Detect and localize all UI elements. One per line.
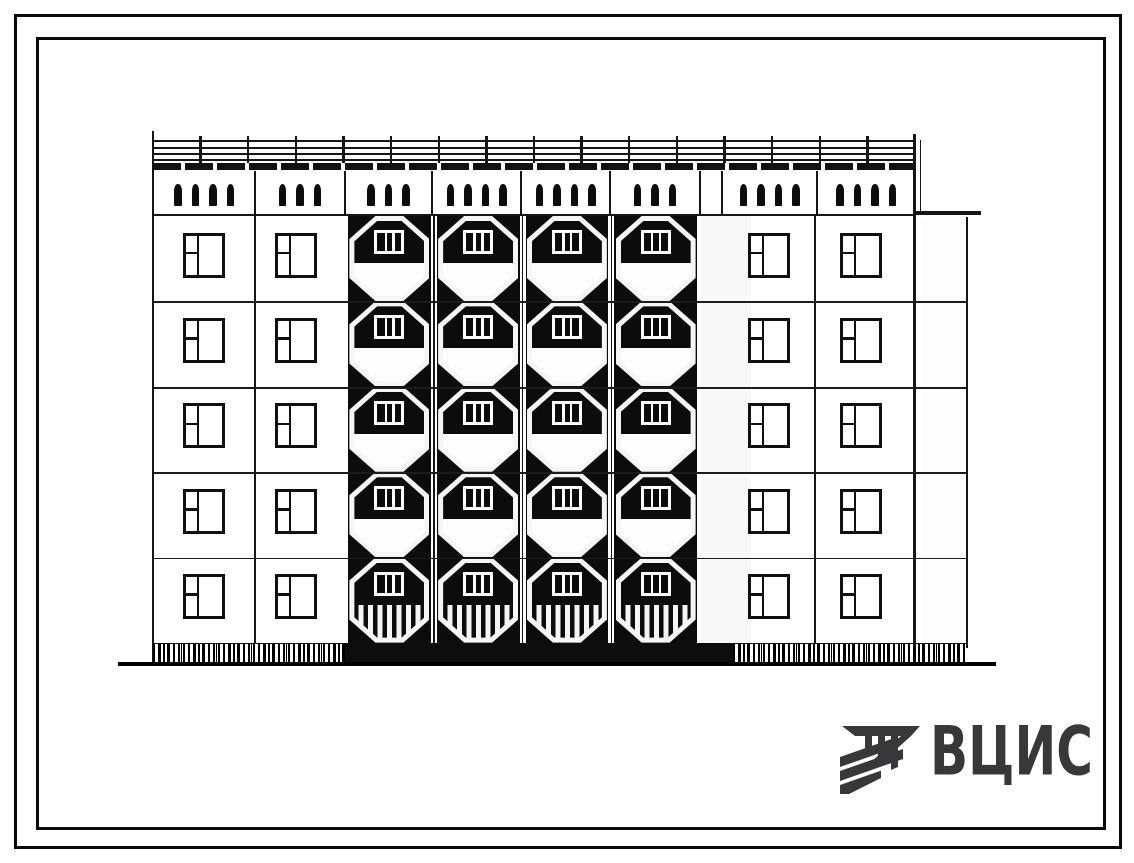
balcony-window-mullion (562, 318, 565, 336)
balcony-window-mullion (473, 233, 476, 251)
floor-line (153, 387, 966, 389)
balcony-window (641, 486, 671, 510)
balcony-balustrade-slats (532, 605, 602, 638)
attic-vent-slot (447, 184, 455, 206)
balcony-octagon-rim (349, 472, 429, 557)
balcony-octagon-interior (621, 477, 691, 552)
balcony-octagon-rim (527, 301, 607, 386)
balcony-window-mullion (392, 489, 395, 507)
balcony-window-pane (644, 318, 668, 336)
balcony-cell (345, 472, 434, 557)
balcony-cell (523, 387, 612, 472)
balcony-window-mullion (562, 233, 565, 251)
vent-band-joint (816, 171, 818, 215)
balcony-window (552, 315, 582, 339)
balcony-octagon-rim (616, 216, 696, 301)
facade-window (748, 403, 790, 448)
window-vent-divider (186, 593, 197, 596)
balcony-window-pane (377, 575, 401, 593)
balcony-window-mullion (392, 575, 395, 593)
facade-window (748, 489, 790, 534)
facade-window (183, 318, 225, 363)
facade-window (840, 318, 882, 363)
attic-vent-slot (192, 184, 200, 206)
balcony-window-pane (466, 404, 490, 422)
attic-vent-slot (227, 184, 235, 206)
balcony-window-pane (644, 233, 668, 251)
attic-vent-slot (669, 184, 677, 206)
attic-vent-slot (889, 184, 897, 206)
balcony-octagon-rim (527, 472, 607, 557)
balcony-window-pane (555, 489, 579, 507)
facade-window (748, 233, 790, 278)
window-casement-divider (197, 492, 200, 531)
balcony-balustrade-slats (354, 605, 424, 638)
balcony-window-pane (466, 233, 490, 251)
parapet-tick (771, 136, 773, 163)
balcony-octagon-rim (527, 387, 607, 472)
vent-band-joint (254, 171, 256, 215)
balcony-window-mullion (473, 489, 476, 507)
balcony-window-mullion (481, 233, 484, 251)
balcony-cell (611, 472, 700, 557)
window-casement-divider (197, 577, 200, 616)
window-casement-divider (197, 406, 200, 445)
balcony-window-mullion (651, 404, 654, 422)
balcony-octagon-interior (443, 392, 513, 467)
window-vent-divider (278, 252, 289, 255)
floor-line (153, 472, 966, 474)
balcony-window-mullion (659, 233, 662, 251)
attic-vent-slot (571, 184, 579, 206)
attic-vent-slot (296, 184, 304, 206)
balcony-window-mullion (570, 404, 573, 422)
balcony-balustrade-slats (443, 605, 513, 638)
balcony-octagon-interior (621, 392, 691, 467)
balcony-window (463, 401, 493, 425)
balcony-window-pane (377, 318, 401, 336)
facade-window (748, 318, 790, 363)
balcony-octagon-interior (443, 563, 513, 638)
facade-right-inner-edge (920, 140, 922, 215)
balcony-window-mullion (659, 318, 662, 336)
parapet-tick (723, 136, 725, 163)
balcony-window-mullion (473, 575, 476, 593)
balcony-octagon-rim (527, 558, 607, 643)
parapet-band (153, 163, 915, 170)
window-vent-divider (751, 508, 762, 511)
balcony-window (374, 486, 404, 510)
balcony-octagon-interior (354, 306, 424, 381)
parapet-tick (342, 136, 344, 163)
balcony-window (463, 315, 493, 339)
balcony-octagon-interior (621, 306, 691, 381)
balcony-balustrade-slats (621, 605, 691, 638)
window-vent-divider (843, 423, 854, 426)
vcis-logo: ВЦИС (836, 714, 1086, 804)
parapet-tick (247, 136, 249, 163)
parapet-tick (295, 136, 297, 163)
window-casement-divider (854, 321, 857, 360)
balcony-window-mullion (659, 575, 662, 593)
attic-vent-slot (464, 184, 472, 206)
balcony-window-mullion (570, 575, 573, 593)
window-casement-divider (854, 577, 857, 616)
window-vent-divider (278, 593, 289, 596)
balcony-octagon-interior (621, 221, 691, 296)
window-casement-divider (289, 492, 292, 531)
balcony-cell (345, 216, 434, 301)
facade-window (840, 574, 882, 619)
attic-vent-slot (553, 184, 561, 206)
balcony-window (463, 486, 493, 510)
window-vent-divider (751, 423, 762, 426)
window-vent-divider (186, 252, 197, 255)
balcony-octagon-interior (621, 563, 691, 638)
balcony-octagon-rim (349, 301, 429, 386)
balcony-window-pane (466, 489, 490, 507)
balcony-window (552, 486, 582, 510)
attic-vent-slot (836, 184, 844, 206)
window-vent-divider (751, 337, 762, 340)
window-casement-divider (762, 236, 765, 275)
balcony-window-pane (377, 233, 401, 251)
balcony-window-pane (555, 575, 579, 593)
window-casement-divider (289, 577, 292, 616)
balcony-cell (611, 387, 700, 472)
vent-band-joint (431, 171, 433, 215)
balcony-octagon-rim (616, 472, 696, 557)
facade-window (183, 233, 225, 278)
balcony-octagon-rim (438, 558, 518, 643)
balcony-octagon-interior (354, 563, 424, 638)
balcony-octagon-interior (532, 477, 602, 552)
facade-window (275, 403, 317, 448)
facade-window (183, 403, 225, 448)
attic-vent-slot (757, 184, 765, 206)
balcony-octagon-rim (616, 301, 696, 386)
vent-band-joint (721, 171, 723, 215)
balcony-window-pane (644, 404, 668, 422)
attic-vent-slot (651, 184, 659, 206)
balcony-window-mullion (570, 233, 573, 251)
parapet-tick (533, 136, 535, 163)
balcony-window (374, 315, 404, 339)
attic-vent-slot (385, 184, 393, 206)
facade-window (183, 574, 225, 619)
balcony-octagon-interior (443, 221, 513, 296)
window-vent-divider (751, 593, 762, 596)
parapet-tick (438, 136, 440, 163)
balcony-window-mullion (659, 489, 662, 507)
window-casement-divider (762, 577, 765, 616)
right-section-joint (814, 215, 816, 643)
balcony-window (641, 230, 671, 254)
balcony-window-mullion (473, 318, 476, 336)
balcony-window (552, 230, 582, 254)
balcony-octagon-rim (527, 216, 607, 301)
vent-band-joint (520, 171, 522, 215)
balcony-window (641, 401, 671, 425)
balcony-octagon-interior (354, 477, 424, 552)
vent-band-joint (344, 171, 346, 215)
plinth-solid (345, 643, 733, 662)
facade-window (275, 489, 317, 534)
parapet-tick (628, 136, 630, 163)
balcony-cell (434, 216, 523, 301)
window-casement-divider (289, 321, 292, 360)
balcony-window-pane (644, 489, 668, 507)
facade-window (840, 489, 882, 534)
facade-window (183, 489, 225, 534)
balcony-octagon-interior (532, 563, 602, 638)
side-wall-stipple (921, 218, 965, 647)
window-vent-divider (843, 508, 854, 511)
attic-vent-slot (854, 184, 862, 206)
balcony-window-pane (466, 318, 490, 336)
balcony-window-mullion (659, 404, 662, 422)
attic-vent-slot (174, 184, 182, 206)
balcony-cell (611, 301, 700, 386)
window-casement-divider (197, 236, 200, 275)
balcony-octagon-interior (354, 221, 424, 296)
balcony-cell (345, 558, 434, 643)
balcony-cell (345, 301, 434, 386)
balcony-window-pane (377, 489, 401, 507)
balcony-cell (523, 301, 612, 386)
balcony-octagon-interior (532, 221, 602, 296)
balcony-window (641, 315, 671, 339)
floor-line (153, 558, 966, 560)
attic-vent-slot (314, 184, 322, 206)
attic-vent-slot (209, 184, 217, 206)
attic-vent-slot (871, 184, 879, 206)
drawing-sheet: ВЦИС (0, 0, 1134, 863)
balcony-octagon-interior (443, 477, 513, 552)
balcony-octagon-rim (616, 387, 696, 472)
balcony-window-mullion (651, 489, 654, 507)
balcony-octagon-rim (438, 387, 518, 472)
balcony-octagon-interior (354, 392, 424, 467)
balcony-window-mullion (385, 575, 388, 593)
ground-line (118, 662, 996, 667)
facade-left-edge (152, 131, 154, 662)
balcony-window-mullion (385, 489, 388, 507)
attic-vent-slot (740, 184, 748, 206)
parapet-tick (390, 136, 392, 163)
balcony-cell (434, 301, 523, 386)
balcony-window-mullion (562, 489, 565, 507)
balcony-window-mullion (570, 318, 573, 336)
window-casement-divider (762, 406, 765, 445)
balcony-window-pane (555, 233, 579, 251)
balcony-window-mullion (481, 575, 484, 593)
balcony-octagon-rim (349, 216, 429, 301)
parapet-tick (199, 136, 201, 163)
parapet-tick (580, 136, 582, 163)
window-casement-divider (854, 236, 857, 275)
facade-window (748, 574, 790, 619)
balcony-window-mullion (473, 404, 476, 422)
balcony-octagon-rim (616, 558, 696, 643)
plinth-textured-left (153, 643, 345, 663)
window-casement-divider (197, 321, 200, 360)
balcony-cell (434, 472, 523, 557)
window-casement-divider (289, 406, 292, 445)
window-vent-divider (843, 337, 854, 340)
window-vent-divider (278, 337, 289, 340)
vcis-logo-icon (836, 724, 926, 794)
balcony-window-mullion (392, 404, 395, 422)
balcony-window-mullion (481, 404, 484, 422)
attic-vent-slot (634, 184, 642, 206)
balcony-window-pane (466, 575, 490, 593)
balcony-window-pane (555, 404, 579, 422)
attic-vent-slot (482, 184, 490, 206)
attic-vent-slot (279, 184, 287, 206)
balcony-window-mullion (651, 575, 654, 593)
side-wall-cornice (913, 211, 981, 215)
balcony-window-mullion (562, 575, 565, 593)
balcony-octagon-interior (443, 306, 513, 381)
attic-vent-slot (588, 184, 596, 206)
balcony-octagon-rim (438, 301, 518, 386)
facade-window (275, 574, 317, 619)
window-vent-divider (751, 252, 762, 255)
balcony-window (374, 401, 404, 425)
window-vent-divider (843, 593, 854, 596)
window-casement-divider (289, 236, 292, 275)
balcony-octagon-interior (532, 392, 602, 467)
balcony-window-mullion (651, 318, 654, 336)
window-vent-divider (278, 423, 289, 426)
facade-window (275, 318, 317, 363)
balcony-octagon-rim (349, 558, 429, 643)
attic-vent-slot (792, 184, 800, 206)
balcony-window-pane (555, 318, 579, 336)
parapet-tick (866, 136, 868, 163)
balcony-window-mullion (651, 233, 654, 251)
left-section-joint (254, 215, 256, 643)
balcony-window (374, 572, 404, 596)
side-wall-edge (966, 217, 969, 648)
window-casement-divider (854, 406, 857, 445)
balcony-window-mullion (392, 233, 395, 251)
floor-line (153, 301, 966, 303)
facade-window (840, 403, 882, 448)
window-vent-divider (186, 508, 197, 511)
shadow-strip (701, 216, 751, 643)
balcony-window (641, 572, 671, 596)
window-casement-divider (854, 492, 857, 531)
parapet-tick (676, 136, 678, 163)
balcony-window-mullion (562, 404, 565, 422)
balcony-window (463, 572, 493, 596)
balcony-cell (523, 472, 612, 557)
balcony-octagon-rim (438, 472, 518, 557)
vent-band-joint (699, 171, 701, 215)
attic-vent-slot (402, 184, 410, 206)
balcony-window (552, 572, 582, 596)
facade-window (275, 233, 317, 278)
parapet-tick (485, 136, 487, 163)
balcony-window-pane (377, 404, 401, 422)
plinth-textured-right (733, 643, 966, 663)
balcony-window (552, 401, 582, 425)
window-vent-divider (278, 508, 289, 511)
window-vent-divider (186, 423, 197, 426)
facade-window (840, 233, 882, 278)
balcony-cell (523, 216, 612, 301)
balcony-cell (434, 387, 523, 472)
balcony-window-mullion (570, 489, 573, 507)
window-vent-divider (186, 337, 197, 340)
balcony-octagon-rim (349, 387, 429, 472)
window-casement-divider (762, 492, 765, 531)
balcony-window-mullion (385, 318, 388, 336)
vcis-logo-text: ВЦИС (930, 714, 1093, 792)
balcony-window-mullion (481, 318, 484, 336)
attic-vent-slot (499, 184, 507, 206)
balcony-window-mullion (385, 404, 388, 422)
balcony-window-mullion (481, 489, 484, 507)
balcony-window-mullion (392, 318, 395, 336)
attic-vent-slot (775, 184, 783, 206)
window-vent-divider (843, 252, 854, 255)
balcony-window (463, 230, 493, 254)
balcony-cell (345, 387, 434, 472)
balcony-cell (523, 558, 612, 643)
balcony-window-mullion (385, 233, 388, 251)
balcony-window (374, 230, 404, 254)
attic-vent-slot (536, 184, 544, 206)
balcony-cell (611, 216, 700, 301)
balcony-cell (611, 558, 700, 643)
parapet-tick (819, 136, 821, 163)
balcony-octagon-rim (438, 216, 518, 301)
vent-band-joint (609, 171, 611, 215)
balcony-octagon-interior (532, 306, 602, 381)
balcony-cell (434, 558, 523, 643)
attic-vent-slot (367, 184, 375, 206)
window-casement-divider (762, 321, 765, 360)
balcony-window-pane (644, 575, 668, 593)
